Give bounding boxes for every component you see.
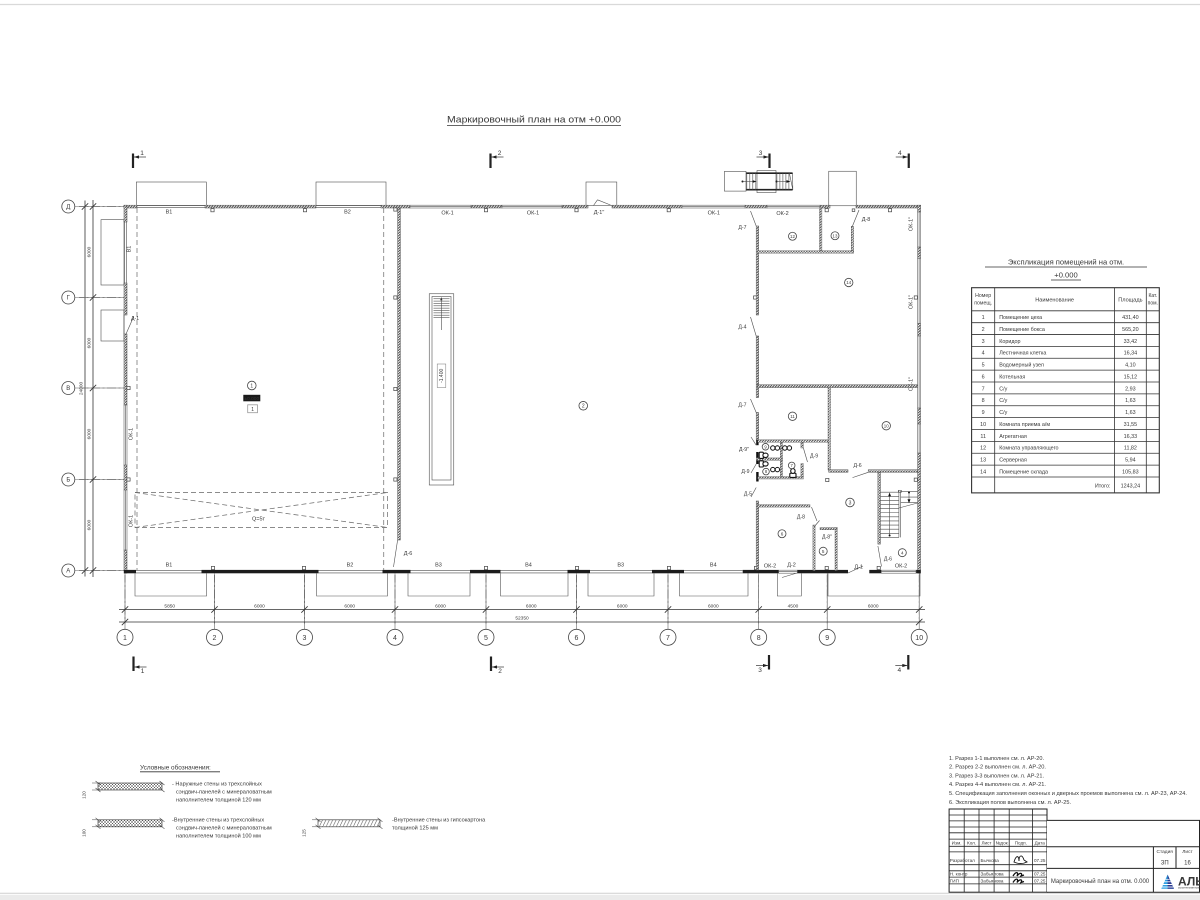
svg-text:10: 10 — [915, 635, 923, 642]
svg-text:№док: №док — [996, 841, 1009, 846]
svg-text:13: 13 — [833, 233, 838, 238]
svg-text:105,83: 105,83 — [1122, 469, 1139, 475]
svg-text:В2: В2 — [344, 210, 351, 216]
svg-text:ОК-1: ОК-1 — [708, 211, 720, 217]
svg-text:Д-1: Д-1 — [854, 565, 863, 571]
svg-text:07.25: 07.25 — [1034, 878, 1046, 883]
svg-text:565,20: 565,20 — [1122, 327, 1139, 333]
svg-text:+0.000: +0.000 — [1054, 271, 1077, 280]
svg-text:1: 1 — [251, 407, 254, 413]
svg-text:1: 1 — [250, 383, 253, 389]
svg-text:6000: 6000 — [344, 604, 355, 610]
svg-text:16: 16 — [1184, 861, 1191, 867]
svg-text:3. Разрез 3-3 выполнен см. л.: 3. Разрез 3-3 выполнен см. л. АР-21. — [949, 773, 1044, 779]
svg-text:Итого:: Итого: — [1095, 484, 1111, 490]
svg-text:5: 5 — [822, 549, 825, 554]
svg-text:2,93: 2,93 — [1125, 386, 1136, 392]
svg-text:1,63: 1,63 — [1125, 410, 1136, 416]
svg-text:ОК-1": ОК-1" — [909, 217, 915, 231]
svg-text:6000: 6000 — [87, 246, 93, 257]
svg-text:Д-5: Д-5 — [744, 492, 752, 498]
svg-text:Д-8": Д-8" — [822, 535, 832, 541]
svg-text:Комната управляющего: Комната управляющего — [999, 446, 1058, 452]
svg-text:31,55: 31,55 — [1124, 422, 1138, 428]
svg-text:15,12: 15,12 — [1124, 374, 1138, 380]
svg-text:6000: 6000 — [708, 604, 719, 610]
svg-text:2: 2 — [498, 150, 502, 157]
svg-text:В3: В3 — [617, 563, 624, 569]
svg-text:С/у: С/у — [999, 398, 1007, 404]
svg-text:В: В — [66, 386, 70, 392]
svg-text:-Внутренние стены из гипсокарт: -Внутренние стены из гипсокартона — [392, 818, 486, 824]
svg-text:В2: В2 — [347, 563, 354, 569]
svg-text:12: 12 — [790, 234, 795, 239]
svg-text:5,94: 5,94 — [1125, 458, 1136, 464]
svg-text:11,82: 11,82 — [1124, 446, 1137, 452]
svg-text:07.25: 07.25 — [1034, 872, 1046, 877]
svg-text:2: 2 — [213, 635, 217, 642]
svg-text:строительная компания: строительная компания — [1178, 887, 1200, 890]
svg-text:6000: 6000 — [87, 428, 93, 439]
svg-text:6: 6 — [575, 635, 579, 642]
svg-text:Наименование: Наименование — [1035, 298, 1074, 304]
svg-text:3: 3 — [758, 667, 762, 674]
svg-text:Площадь: Площадь — [1118, 298, 1142, 304]
svg-text:11: 11 — [980, 434, 986, 440]
svg-text:5: 5 — [982, 363, 985, 369]
svg-text:33,42: 33,42 — [1124, 339, 1138, 345]
svg-text:В4: В4 — [525, 563, 532, 569]
svg-text:В4: В4 — [710, 563, 717, 569]
svg-text:Лестничная клетка: Лестничная клетка — [999, 351, 1046, 357]
svg-text:6: 6 — [982, 374, 985, 380]
svg-text:сэндвич-панелей с минераловатн: сэндвич-панелей с минераловатным — [176, 789, 272, 796]
svg-text:ОК-1": ОК-1" — [909, 295, 915, 309]
svg-text:Экспликация помещений на отм.: Экспликация помещений на отм. — [1008, 258, 1124, 267]
svg-text:ОК-2: ОК-2 — [895, 564, 907, 570]
svg-text:4: 4 — [393, 635, 397, 642]
svg-text:2: 2 — [982, 327, 985, 333]
svg-text:7: 7 — [666, 635, 670, 642]
svg-text:16,33: 16,33 — [1124, 434, 1138, 440]
svg-text:1: 1 — [982, 315, 985, 321]
svg-text:Д-9: Д-9 — [810, 454, 818, 460]
svg-text:10: 10 — [980, 422, 986, 428]
svg-text:наполнителем толщиной 100 мм: наполнителем толщиной 100 мм — [176, 833, 261, 840]
svg-text:Б: Б — [66, 478, 70, 484]
svg-text:Помещение бокса: Помещение бокса — [999, 327, 1045, 333]
svg-text:Н. контр: Н. контр — [950, 872, 968, 877]
svg-text:1: 1 — [140, 150, 144, 157]
svg-text:Разработал: Разработал — [950, 858, 975, 863]
svg-text:ГИП: ГИП — [950, 878, 959, 883]
svg-text:Д-2: Д-2 — [787, 563, 796, 569]
svg-text:6000: 6000 — [617, 604, 628, 610]
svg-text:4: 4 — [901, 550, 904, 555]
svg-text:Д-6: Д-6 — [404, 551, 413, 557]
svg-text:14: 14 — [846, 280, 851, 285]
svg-text:14: 14 — [980, 469, 986, 475]
svg-text:Номер: Номер — [975, 293, 991, 299]
svg-text:16,34: 16,34 — [1124, 351, 1138, 357]
svg-text:07.25: 07.25 — [1034, 858, 1046, 863]
svg-text:Д-7: Д-7 — [738, 403, 746, 409]
svg-text:6000: 6000 — [254, 604, 265, 610]
svg-text:5. Спецификация заполнения око: 5. Спецификация заполнения оконных и две… — [949, 791, 1187, 797]
svg-text:Д-9: Д-9 — [741, 469, 749, 475]
svg-text:1: 1 — [141, 668, 145, 675]
svg-text:5: 5 — [484, 635, 488, 642]
svg-text:С/у: С/у — [999, 386, 1007, 392]
svg-text:Помещение цеха: Помещение цеха — [999, 315, 1042, 321]
svg-text:3: 3 — [303, 635, 307, 642]
svg-text:Д-1: Д-1 — [131, 316, 139, 322]
svg-text:Котельная: Котельная — [999, 374, 1025, 380]
svg-text:11: 11 — [790, 414, 795, 419]
svg-text:А: А — [66, 569, 70, 575]
svg-text:8: 8 — [757, 635, 761, 642]
svg-text:Серверная: Серверная — [999, 458, 1027, 464]
svg-text:4500: 4500 — [788, 604, 799, 610]
svg-text:Подп.: Подп. — [1015, 841, 1027, 846]
svg-text:-1.400: -1.400 — [439, 368, 445, 382]
svg-text:4. Разрез 4-4 выполнен см. л.: 4. Разрез 4-4 выполнен см. л. АР-21. — [949, 782, 1046, 788]
svg-text:2. Разрез 2-2 выполнен см. л.: 2. Разрез 2-2 выполнен см. л. АР-20. — [949, 765, 1046, 771]
svg-text:В1: В1 — [127, 246, 133, 253]
svg-text:100: 100 — [82, 829, 87, 837]
svg-text:6000: 6000 — [87, 519, 93, 530]
svg-text:10: 10 — [884, 423, 889, 428]
svg-text:24000: 24000 — [79, 382, 85, 396]
svg-text:8: 8 — [982, 398, 985, 404]
svg-text:52350: 52350 — [515, 616, 529, 622]
svg-text:ОК-1: ОК-1 — [527, 211, 539, 217]
svg-text:2: 2 — [582, 404, 585, 410]
svg-text:Стадия: Стадия — [1157, 849, 1174, 855]
svg-text:Д-4: Д-4 — [738, 325, 746, 331]
svg-text:431,40: 431,40 — [1122, 315, 1139, 321]
svg-text:Д-6: Д-6 — [884, 557, 892, 563]
svg-text:ОК-1: ОК-1 — [129, 515, 135, 527]
svg-text:1243,24: 1243,24 — [1121, 484, 1141, 490]
svg-text:Лист: Лист — [982, 841, 993, 846]
svg-text:Помещение склада: Помещение склада — [999, 469, 1048, 475]
svg-text:ОК-1: ОК-1 — [129, 428, 135, 440]
svg-text:ОК-1: ОК-1 — [441, 211, 453, 217]
svg-text:Коридор: Коридор — [999, 339, 1020, 345]
svg-text:Q=5т: Q=5т — [252, 517, 266, 523]
svg-text:13: 13 — [980, 458, 986, 464]
svg-text:1,63: 1,63 — [1125, 398, 1136, 404]
svg-text:6000: 6000 — [526, 604, 537, 610]
svg-text:1: 1 — [123, 635, 127, 642]
svg-text:4: 4 — [897, 667, 901, 674]
svg-text:3: 3 — [849, 500, 852, 506]
svg-text:6000: 6000 — [868, 604, 879, 610]
svg-text:Д-6: Д-6 — [854, 463, 862, 469]
svg-text:4: 4 — [982, 351, 985, 357]
svg-text:Комната приема а/м: Комната приема а/м — [999, 422, 1050, 428]
svg-text:3: 3 — [759, 150, 763, 157]
svg-text:Забьялова: Забьялова — [981, 872, 1005, 877]
svg-text:толщиной 125 мм: толщиной 125 мм — [392, 825, 438, 832]
svg-text:наполнителем толщиной 120 мм: наполнителем толщиной 120 мм — [176, 797, 261, 804]
svg-text:6000: 6000 — [87, 337, 93, 348]
svg-text:сэндвич-панелей с минераловатн: сэндвич-панелей с минераловатным — [176, 825, 272, 832]
svg-text:Д-1": Д-1" — [594, 210, 605, 216]
svg-text:Изм.: Изм. — [952, 841, 962, 846]
svg-text:Д-8: Д-8 — [797, 515, 805, 521]
svg-text:Дата: Дата — [1035, 841, 1046, 846]
svg-text:Д-7: Д-7 — [738, 225, 746, 231]
svg-text:6. Экспликация полов выполнена: 6. Экспликация полов выполнена см. л. АР… — [949, 800, 1071, 806]
svg-text:4,10: 4,10 — [1125, 363, 1136, 369]
svg-text:ОК-2: ОК-2 — [764, 564, 776, 570]
svg-text:В1: В1 — [166, 563, 173, 569]
svg-text:Кол.: Кол. — [967, 841, 976, 846]
svg-text:5850: 5850 — [164, 604, 175, 610]
svg-text:4: 4 — [898, 150, 902, 157]
svg-text:В3: В3 — [435, 563, 442, 569]
svg-text:9: 9 — [825, 635, 829, 642]
svg-text:- Наружные стены из трехслойны: - Наружные стены из трехслойных — [172, 781, 262, 788]
svg-text:Д: Д — [66, 205, 70, 211]
svg-text:Условные обозначения:: Условные обозначения: — [140, 764, 211, 772]
svg-text:Д-8: Д-8 — [862, 217, 871, 223]
svg-text:±0.000: ±0.000 — [244, 396, 259, 402]
svg-text:1. Разрез 1-1 выполнен см. л.: 1. Разрез 1-1 выполнен см. л. АР-20. — [949, 756, 1044, 762]
svg-text:ЗП: ЗП — [1161, 861, 1169, 867]
svg-text:125: 125 — [302, 829, 307, 837]
svg-text:Кат.: Кат. — [1148, 293, 1157, 299]
svg-text:Маркировочный план на отм +0.0: Маркировочный план на отм +0.000 — [447, 115, 621, 125]
svg-text:12: 12 — [980, 446, 986, 452]
svg-text:Лист: Лист — [1182, 849, 1193, 855]
svg-text:6000: 6000 — [435, 604, 446, 610]
svg-text:В1: В1 — [166, 210, 173, 216]
svg-text:ОК-1": ОК-1" — [909, 377, 915, 391]
svg-text:Водомерный узел: Водомерный узел — [999, 362, 1044, 369]
svg-text:Забьянова: Забьянова — [981, 878, 1004, 883]
svg-text:2: 2 — [498, 668, 502, 675]
svg-text:ОК-2: ОК-2 — [776, 211, 788, 217]
svg-text:помещ.: помещ. — [974, 301, 992, 307]
svg-text:Бычкова: Бычкова — [981, 858, 1000, 863]
svg-text:Маркировочный план на отм. 0.0: Маркировочный план на отм. 0.000 — [1051, 878, 1150, 885]
svg-text:-Внутренние стены из трехслойн: -Внутренние стены из трехслойных — [172, 817, 264, 824]
svg-text:9: 9 — [982, 410, 985, 416]
svg-text:120: 120 — [82, 791, 87, 799]
svg-text:С/у: С/у — [999, 410, 1007, 416]
svg-text:Агрегатная: Агрегатная — [999, 434, 1027, 440]
svg-text:6: 6 — [781, 531, 784, 536]
svg-text:пом.: пом. — [1148, 301, 1158, 307]
svg-text:7: 7 — [982, 386, 985, 392]
svg-text:3: 3 — [982, 339, 985, 345]
svg-text:Д-9": Д-9" — [739, 447, 749, 453]
